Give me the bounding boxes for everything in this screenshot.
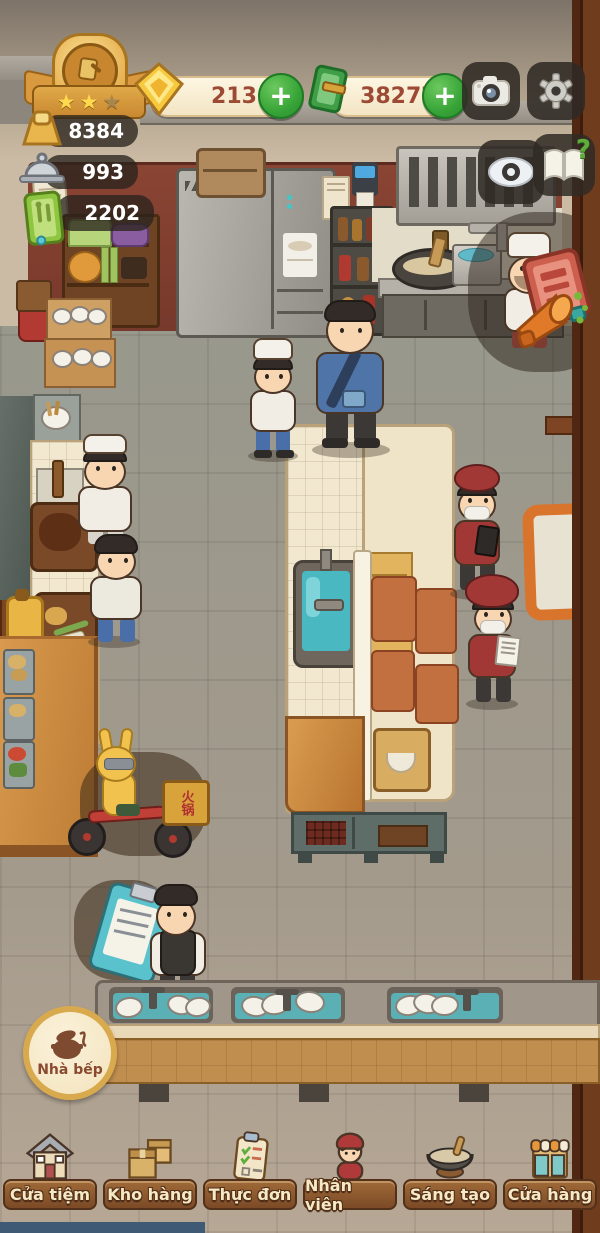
plus-label: + <box>433 82 456 110</box>
bottle <box>338 217 348 241</box>
nav-item-warehouse[interactable]: Kho hàng <box>102 1129 198 1210</box>
basket-potato-2 <box>3 697 35 741</box>
mushrooms <box>121 257 147 279</box>
bottom-nav: Cửa tiệm Kho hàng <box>0 1112 600 1210</box>
nav-item-menu[interactable]: Thực đơn <box>202 1129 298 1210</box>
trike-wheel-left <box>68 818 106 856</box>
sink-2 <box>231 987 345 1023</box>
nav-label-warehouse: Kho hàng <box>107 1185 192 1204</box>
nav-item-store[interactable]: Cửa hàng <box>502 1129 598 1210</box>
basket-potato-1 <box>3 649 35 695</box>
gold-stat-value: 8384 <box>68 119 124 143</box>
nav-item-staff[interactable]: Nhân viên <box>302 1129 398 1210</box>
station-leg-2 <box>299 1084 329 1102</box>
star-icon-2: ★ <box>80 90 99 114</box>
island-faucet-2 <box>314 599 344 611</box>
cutting-board-3[interactable] <box>371 650 415 712</box>
gem-count: 213 <box>211 84 257 109</box>
station-leg-1 <box>139 1084 169 1102</box>
megaphone-icon <box>508 278 592 352</box>
menu-stat-value: 2202 <box>84 201 140 225</box>
bottom-blue-strip <box>0 1222 205 1233</box>
nav-label-staff: Nhân viên <box>305 1176 395 1214</box>
nav-label-shop: Cửa tiệm <box>10 1185 90 1204</box>
delivery-box[interactable]: 火锅 <box>162 780 210 826</box>
store-stall-icon <box>522 1129 578 1185</box>
character-waiter-red-2[interactable] <box>452 574 528 710</box>
shop-house-icon <box>22 1129 78 1185</box>
face-mask <box>464 506 490 520</box>
visor <box>104 758 134 770</box>
payment-terminal[interactable] <box>352 162 378 196</box>
station-leg-3 <box>459 1084 489 1102</box>
gear-icon <box>536 71 576 111</box>
cloche-icon <box>18 148 66 192</box>
delivery-box-label: 火锅 <box>180 790 193 816</box>
help-book-icon: ? <box>541 145 587 185</box>
sink-3 <box>387 987 503 1023</box>
nav-pedestal: Nhân viên <box>303 1179 397 1210</box>
pumpkin <box>68 251 102 283</box>
character-dishwasher[interactable] <box>134 884 216 994</box>
pouch <box>342 390 366 408</box>
nav-pedestal: Cửa tiệm <box>3 1179 97 1210</box>
star-icon-3-dim: ★ <box>102 90 121 114</box>
nav-label-menu: Thực đơn <box>209 1185 292 1204</box>
dishes-stat-value: 993 <box>82 160 124 184</box>
nav-pedestal: Cửa hàng <box>503 1179 597 1210</box>
gem-icon <box>128 58 190 120</box>
character-chef-left-2[interactable] <box>76 524 150 646</box>
basket-tomato-greens <box>3 741 35 789</box>
help-question-glyph: ? <box>576 135 591 165</box>
game-screen: 火锅 <box>0 0 600 1233</box>
nav-pedestal: Thực đơn <box>203 1179 297 1210</box>
bunny-shorts <box>116 804 140 816</box>
nav-pedestal: Kho hàng <box>103 1179 197 1210</box>
dumpling-box-2[interactable] <box>44 338 116 388</box>
cutting-board-1[interactable] <box>371 576 417 642</box>
create-wok-icon <box>422 1129 478 1185</box>
bunny-head <box>96 746 136 782</box>
apron <box>160 930 196 976</box>
add-gems-button[interactable]: + <box>258 73 304 119</box>
room-badge-label: Nhà bếp <box>37 1062 103 1078</box>
settings-button[interactable] <box>527 62 585 120</box>
warehouse-boxes-icon <box>122 1129 178 1185</box>
nav-label-store: Cửa hàng <box>508 1185 593 1204</box>
nav-item-shop[interactable]: Cửa tiệm <box>2 1129 98 1210</box>
dish-station[interactable] <box>95 980 600 1106</box>
ginger <box>45 607 67 625</box>
plus-label: + <box>269 82 292 110</box>
island-counter[interactable] <box>285 424 455 860</box>
eye-icon <box>487 155 535 189</box>
pot-icon <box>50 1028 90 1060</box>
sink-1 <box>109 987 213 1023</box>
sink-water <box>302 571 350 651</box>
menu-stat-pill[interactable]: 2202 <box>56 195 154 231</box>
brown-crate <box>378 825 428 847</box>
menu-book-icon <box>21 188 69 250</box>
island-orange-end <box>285 716 365 814</box>
menu-clipboard-icon <box>222 1129 278 1185</box>
cash-icon <box>303 60 363 116</box>
nav-pedestal: Sáng tạo <box>403 1179 497 1210</box>
station-wood-front <box>99 1038 600 1084</box>
bag-on-fridge <box>196 148 266 198</box>
help-button[interactable]: ? <box>533 134 595 196</box>
nav-label-create: Sáng tạo <box>410 1185 490 1204</box>
stool <box>373 728 431 792</box>
camera-icon <box>471 74 511 108</box>
cleaver-icon <box>76 56 104 86</box>
character-blue-uncle[interactable] <box>298 296 402 458</box>
red-crate <box>306 821 346 845</box>
camera-button[interactable] <box>462 62 520 120</box>
announcement-button[interactable] <box>508 278 592 352</box>
fridge-sticker <box>283 233 317 277</box>
nav-item-create[interactable]: Sáng tạo <box>402 1129 498 1210</box>
room-badge-kitchen[interactable]: Nhà bếp <box>23 1006 117 1100</box>
tablet <box>474 525 500 558</box>
order-paper <box>494 635 521 667</box>
character-bunny-courier[interactable]: 火锅 <box>58 744 214 866</box>
gold-ingot-icon <box>20 110 64 150</box>
island-faucet-1 <box>320 549 332 571</box>
island-under-shelf <box>291 812 447 854</box>
character-girl-chef[interactable] <box>240 336 306 462</box>
